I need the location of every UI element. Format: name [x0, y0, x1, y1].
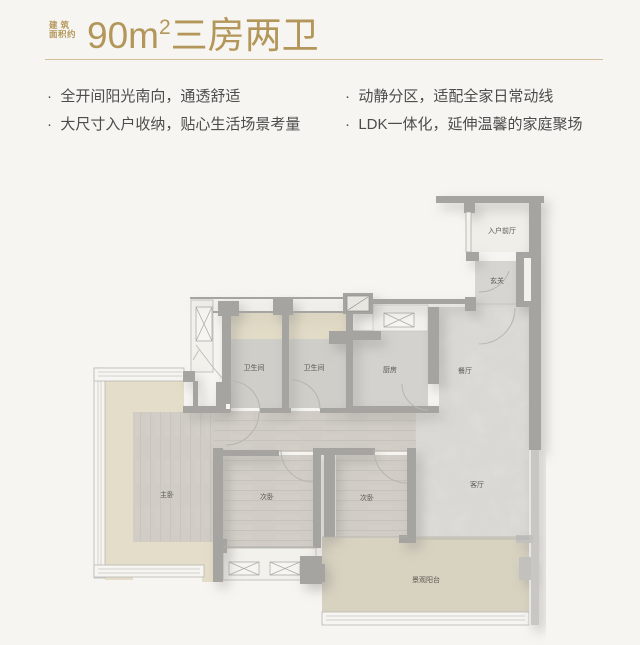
svg-text:客厅: 客厅 [470, 480, 484, 489]
svg-text:主卧: 主卧 [160, 490, 174, 499]
svg-text:卫生间: 卫生间 [304, 363, 325, 372]
svg-text:景观阳台: 景观阳台 [412, 575, 440, 584]
svg-text:玄关: 玄关 [490, 276, 504, 285]
svg-text:次卧: 次卧 [260, 492, 274, 501]
svg-text:次卧: 次卧 [360, 493, 374, 502]
svg-text:入户前厅: 入户前厅 [488, 226, 516, 235]
svg-text:厨房: 厨房 [383, 365, 397, 374]
svg-text:卫生间: 卫生间 [244, 363, 265, 372]
svg-text:餐厅: 餐厅 [458, 366, 472, 375]
